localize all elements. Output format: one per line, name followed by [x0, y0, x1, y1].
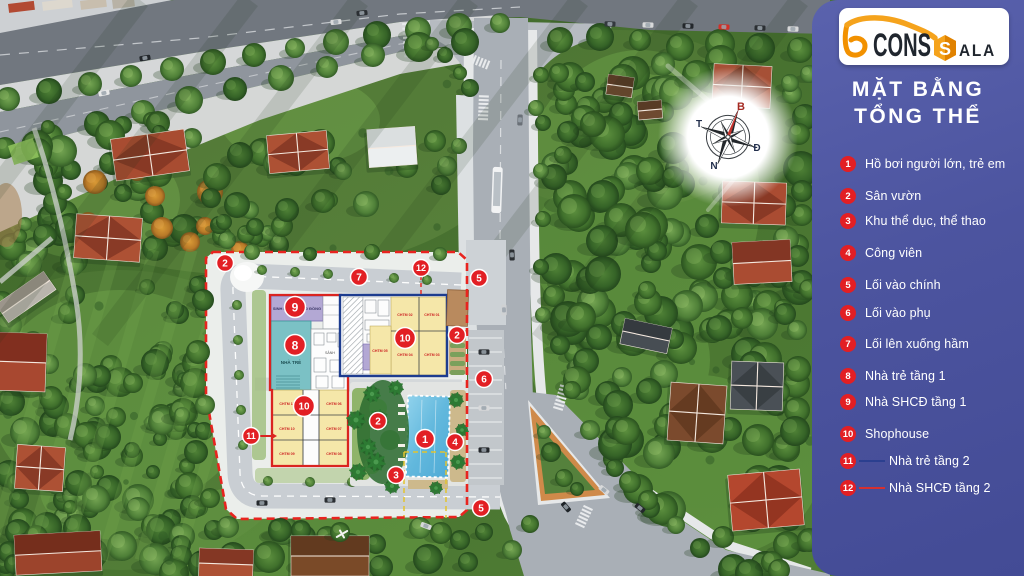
svg-text:NHÀ TRẺ: NHÀ TRẺ [281, 359, 301, 365]
svg-text:2: 2 [454, 331, 460, 342]
svg-text:S: S [939, 39, 951, 59]
svg-text:CHTM 07: CHTM 07 [326, 427, 341, 431]
svg-text:CHTM 11: CHTM 11 [279, 402, 294, 406]
svg-text:SẢNH: SẢNH [325, 350, 335, 355]
svg-text:CHTM 06: CHTM 06 [326, 402, 341, 406]
svg-text:12: 12 [416, 263, 426, 273]
svg-text:2: 2 [375, 417, 381, 428]
svg-text:CHTM 05: CHTM 05 [372, 349, 387, 353]
svg-text:CHTM 10: CHTM 10 [279, 427, 294, 431]
svg-text:CHTM 01: CHTM 01 [424, 313, 439, 317]
svg-text:CHTM 04: CHTM 04 [397, 353, 412, 357]
svg-text:1: 1 [422, 434, 428, 446]
svg-text:CHTM 09: CHTM 09 [279, 452, 294, 456]
svg-text:ALA: ALA [959, 41, 996, 60]
svg-text:5: 5 [478, 504, 484, 515]
svg-text:CHTM 08: CHTM 08 [326, 452, 341, 456]
svg-text:CONS: CONS [873, 27, 931, 63]
svg-text:CHTM 02: CHTM 02 [397, 313, 412, 317]
svg-text:7: 7 [356, 273, 362, 284]
svg-text:T: T [696, 119, 702, 130]
svg-text:CHTM 03: CHTM 03 [424, 353, 439, 357]
svg-text:5: 5 [476, 274, 482, 285]
svg-text:B: B [737, 101, 745, 113]
svg-text:4: 4 [452, 438, 458, 449]
svg-text:11: 11 [246, 431, 256, 441]
svg-text:8: 8 [292, 338, 299, 352]
svg-text:N: N [710, 161, 717, 172]
svg-text:6: 6 [481, 375, 487, 386]
svg-text:10: 10 [399, 334, 411, 345]
svg-text:Đ: Đ [753, 143, 760, 154]
svg-text:10: 10 [298, 402, 310, 413]
svg-text:9: 9 [292, 300, 299, 314]
svg-text:2: 2 [222, 259, 228, 270]
svg-text:3: 3 [393, 471, 399, 482]
